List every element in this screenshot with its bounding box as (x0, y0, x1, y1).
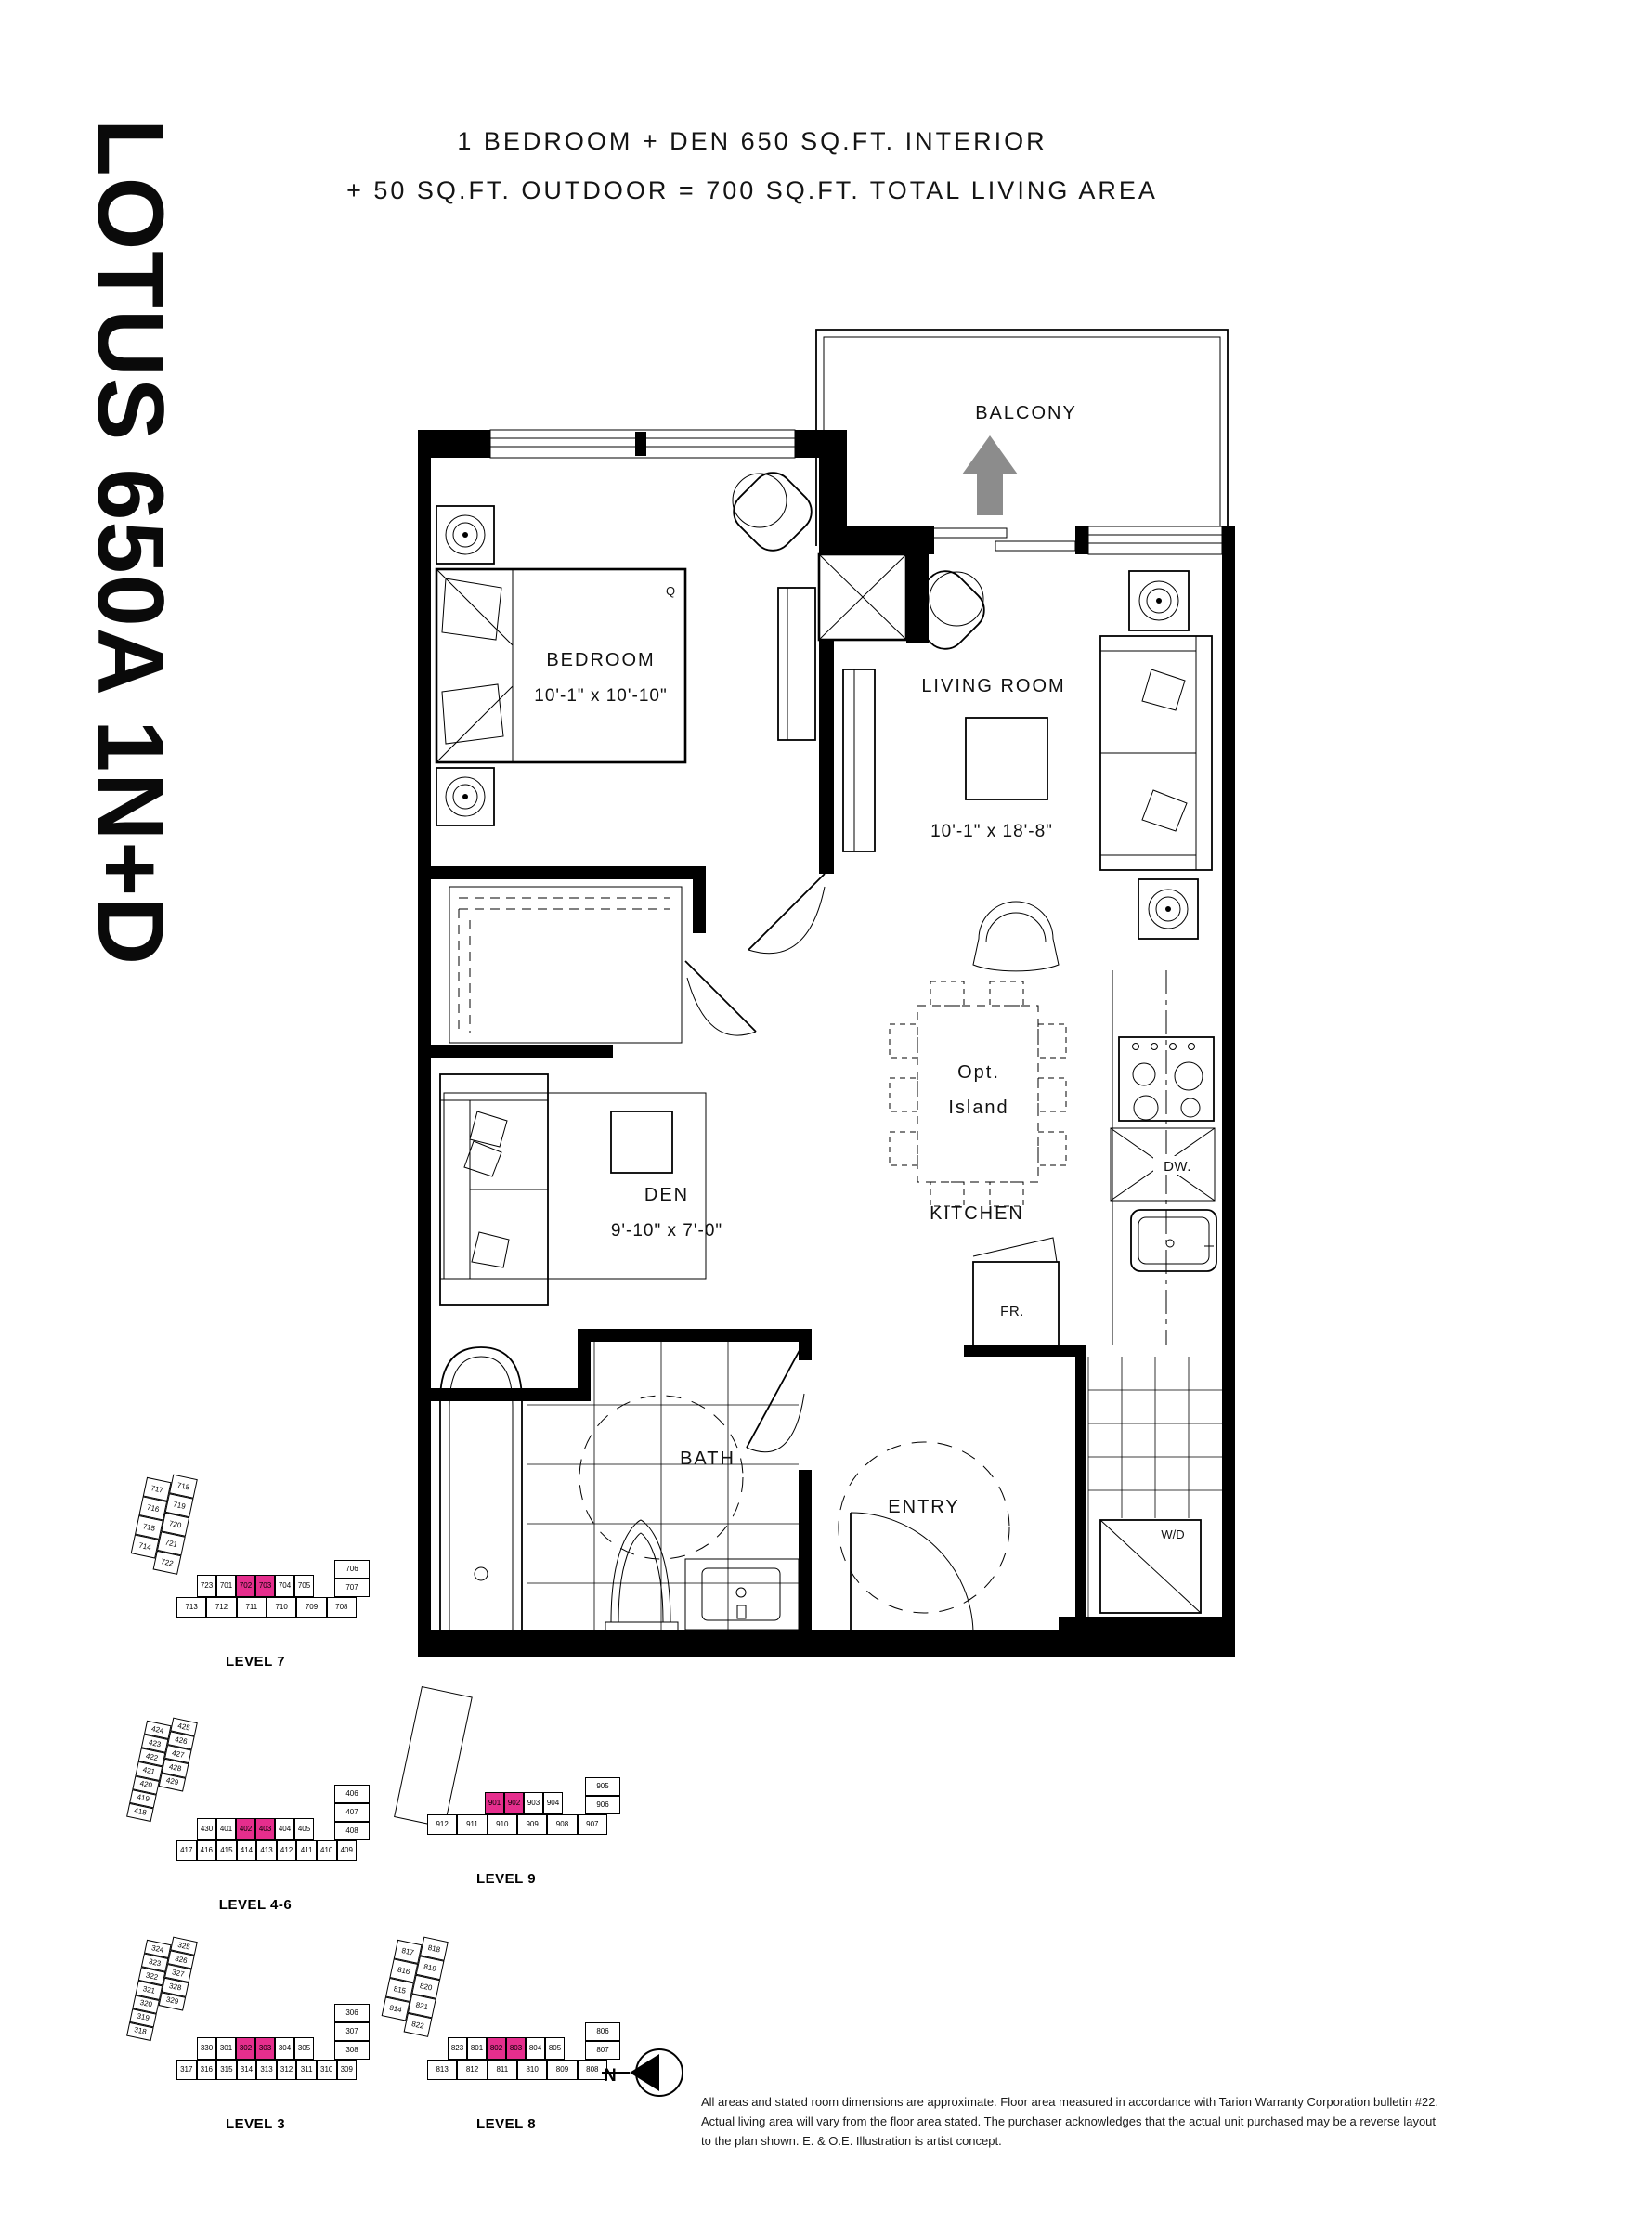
keyplan-unit: 902 (504, 1792, 524, 1814)
keyplan-unit: 908 (547, 1814, 577, 1835)
island-label-1: Opt. (957, 1062, 1000, 1083)
closet (449, 874, 825, 1043)
keyplan-unit: 403 (255, 1818, 275, 1840)
keyplan-row-top: 901902903904 (485, 1792, 563, 1814)
keyplan-unit: 314 (237, 2060, 257, 2080)
keyplan-unit: 315 (216, 2060, 237, 2080)
north-arrow-icon: N (602, 2047, 695, 2099)
keyplan-unit: 705 (294, 1575, 314, 1597)
keyplan-unit: 309 (337, 2060, 358, 2080)
keyplan-row-top: 430401402403404405 (197, 1818, 314, 1840)
keyplan-diagonal-wing: 717716715714718719720721722 (128, 1469, 198, 1575)
bath-door (747, 1342, 804, 1448)
keyplan-unit: 822 (404, 2013, 433, 2037)
keyplan-unit: 413 (256, 1840, 277, 1861)
keyplan-unit: 407 (334, 1803, 370, 1822)
keyplan-unit: 906 (585, 1796, 620, 1814)
keyplan-level-label: LEVEL 9 (390, 1871, 622, 1887)
keyplan-level-3: 3243233223213203193183253263273283293303… (139, 1928, 371, 2146)
keyplan-unit: 905 (585, 1777, 620, 1796)
keyplan-unit: 803 (506, 2037, 526, 2060)
keyplan-unit: 812 (457, 2060, 487, 2080)
kitchen-sink (1131, 1210, 1216, 1271)
keyplan-column-right: 406407408 (334, 1785, 370, 1840)
keyplan-unit: 811 (488, 2060, 517, 2080)
den-dims: 9'-10" x 7'-0" (611, 1221, 722, 1241)
den-sofa (440, 1074, 548, 1305)
bath: BATH (440, 1342, 804, 1637)
keyplan-row-top: 330301302303304305 (197, 2037, 314, 2060)
entry: W/D ENTRY (839, 1357, 1222, 1631)
keyplan-row-bottom: 713712711710709708 (176, 1597, 357, 1618)
bath-tiles (527, 1342, 799, 1630)
fridge: FR. (973, 1238, 1059, 1347)
keyplan-unit: 710 (267, 1597, 296, 1618)
armchair (725, 464, 820, 559)
balcony-arrow-icon (962, 435, 1018, 515)
ceiling-light-icon (436, 768, 494, 825)
keyplan-unit: 801 (467, 2037, 487, 2060)
keyplan-unit: 410 (317, 1840, 337, 1861)
vanity-sink (685, 1559, 799, 1630)
keyplan-unit: 316 (197, 2060, 217, 2080)
keyplan-unit: 802 (487, 2037, 506, 2060)
keyplan-unit: 311 (296, 2060, 317, 2080)
keyplan-unit: 823 (448, 2037, 467, 2060)
sofa (1100, 636, 1212, 870)
keyplan-level-label: LEVEL 3 (139, 2116, 371, 2132)
keyplan-unit: 813 (427, 2060, 457, 2080)
island-label-2: Island (948, 1098, 1008, 1118)
dishwasher-label: DW. (1164, 1159, 1191, 1175)
keyplan-unit: 330 (197, 2037, 216, 2060)
wardrobe (778, 588, 815, 740)
keyplan-unit: 304 (275, 2037, 294, 2060)
chair (973, 902, 1059, 971)
north-label: N (604, 2066, 617, 2086)
keyplan-level-9: 901902903904912911910909908907905906LEVE… (390, 1683, 622, 1901)
keyplan-unit: 707 (334, 1579, 370, 1597)
keyplan-unit: 417 (176, 1840, 197, 1861)
keyplan-unit: 904 (543, 1792, 563, 1814)
keyplan-unit: 706 (334, 1560, 370, 1579)
keyplan-unit: 306 (334, 2004, 370, 2022)
keyplan-unit: 408 (334, 1822, 370, 1840)
keyplan-unit: 701 (216, 1575, 236, 1597)
keyplan-unit: 709 (296, 1597, 326, 1618)
keyplan-unit: 303 (255, 2037, 275, 2060)
keyplan-unit: 308 (334, 2041, 370, 2060)
floorplan-page: LOTUS 650A 1N+D 1 BEDROOM + DEN 650 SQ.F… (0, 0, 1652, 2223)
floorplan-drawing: BALCONY (418, 320, 1235, 1676)
keyplan-unit: 312 (277, 2060, 297, 2080)
header-line1: 1 BEDROOM + DEN 650 SQ.FT. INTERIOR (288, 117, 1216, 166)
balcony-label: BALCONY (975, 403, 1077, 423)
keyplan-unit: 703 (255, 1575, 275, 1597)
keyplan-unit: 708 (327, 1597, 357, 1618)
shaft (819, 554, 906, 640)
keyplan-level-7: 7177167157147187197207217227237017027037… (139, 1465, 371, 1683)
keyplan-unit: 411 (296, 1840, 317, 1861)
bedroom-label: BEDROOM (546, 650, 655, 670)
keyplan-unit: 712 (206, 1597, 236, 1618)
keyplan-unit: 415 (216, 1840, 237, 1861)
keyplan-level-label: LEVEL 8 (390, 2116, 622, 2132)
den-table (611, 1111, 672, 1173)
bedroom-dims: 10'-1" x 10'-10" (534, 686, 667, 706)
keyplan-level-label: LEVEL 7 (139, 1654, 371, 1670)
keyplan-unit: 416 (197, 1840, 217, 1861)
keyplan-unit: 901 (485, 1792, 504, 1814)
keyplan-unit: 723 (197, 1575, 216, 1597)
kitchen: Opt. Island DW. (890, 970, 1216, 1347)
keyplan-unit: 912 (427, 1814, 457, 1835)
plan-title-vertical: LOTUS 650A 1N+D (79, 119, 183, 1038)
keyplan-diagonal-wing: 817816815814818819820821822 (379, 1931, 449, 2037)
keyplan-unit: 310 (317, 2060, 337, 2080)
tv-cabinet (843, 669, 875, 851)
island: Opt. Island (890, 981, 1066, 1206)
keyplan-unit: 409 (337, 1840, 358, 1861)
keyplan-unit: 313 (256, 2060, 277, 2080)
keyplan-unit: 302 (236, 2037, 255, 2060)
keyplan-unit: 907 (578, 1814, 607, 1835)
keyplan-unit: 805 (545, 2037, 565, 2060)
keyplan-column-right: 706707 (334, 1560, 370, 1597)
fridge-label: FR. (1000, 1304, 1024, 1319)
keyplan-unit: 911 (457, 1814, 487, 1835)
keyplan-unit: 702 (236, 1575, 255, 1597)
living-room: LIVING ROOM 10'-1" x 18'-8" (843, 563, 1212, 971)
keyplan-unit: 405 (294, 1818, 314, 1840)
keyplan-diagonal-wing (394, 1686, 473, 1827)
ceiling-light-icon (1129, 571, 1189, 630)
ceiling-light-icon (436, 506, 494, 564)
header-line2: + 50 SQ.FT. OUTDOOR = 700 SQ.FT. TOTAL L… (288, 166, 1216, 215)
keyplan-diagonal-wing: 324323322321320319318325326327328329 (126, 1931, 198, 2047)
keyplan-row-bottom: 317316315314313312311310309 (176, 2060, 357, 2080)
disclaimer-text: All areas and stated room dimensions are… (701, 2093, 1444, 2151)
living-room-dims: 10'-1" x 18'-8" (930, 822, 1053, 841)
keyplan-level-4-6: 4244234224214204194184254264274284294304… (139, 1709, 371, 1927)
keyplan-unit: 909 (517, 1814, 547, 1835)
keyplan-unit: 406 (334, 1785, 370, 1803)
keyplan-unit: 305 (294, 2037, 314, 2060)
keyplan-unit: 412 (277, 1840, 297, 1861)
keyplan-unit: 401 (216, 1818, 236, 1840)
balcony: BALCONY (816, 330, 1228, 546)
den-label: DEN (644, 1185, 689, 1205)
keyplan-unit: 806 (585, 2022, 620, 2041)
keyplan-column-right: 306307308 (334, 2004, 370, 2060)
keyplan-unit: 711 (237, 1597, 267, 1618)
keyplan-unit: 910 (488, 1814, 517, 1835)
keyplan-level-8: 8178168158148188198208218228238018028038… (390, 1928, 622, 2146)
plan-header: 1 BEDROOM + DEN 650 SQ.FT. INTERIOR + 50… (288, 117, 1216, 214)
washer-dryer: W/D (1100, 1520, 1201, 1613)
keyplan-unit: 307 (334, 2022, 370, 2041)
bed-size-label: Q (666, 584, 675, 598)
keyplan-unit: 903 (524, 1792, 543, 1814)
washer-dryer-label: W/D (1161, 1527, 1184, 1541)
entry-label: ENTRY (888, 1497, 959, 1517)
keyplan-row-top: 823801802803804805 (448, 2037, 565, 2060)
toilet (605, 1520, 678, 1637)
keyplan-unit: 301 (216, 2037, 236, 2060)
keyplan-unit: 713 (176, 1597, 206, 1618)
entry-turning-circle (839, 1442, 1009, 1613)
ceiling-light-icon (1138, 879, 1198, 939)
bedroom: Q BEDROOM 10'-1" x 10'-10" (436, 464, 820, 825)
keyplan-level-label: LEVEL 4-6 (139, 1897, 371, 1913)
coffee-table (966, 718, 1047, 799)
living-room-label: LIVING ROOM (921, 676, 1065, 696)
keyplan-unit: 704 (275, 1575, 294, 1597)
keyplan-unit: 414 (237, 1840, 257, 1861)
dishwasher: DW. (1111, 1128, 1215, 1201)
entry-tiles (1088, 1357, 1222, 1624)
keyplan-unit: 804 (526, 2037, 545, 2060)
keyplan-unit: 722 (153, 1551, 182, 1575)
keyplan-unit: 404 (275, 1818, 294, 1840)
keyplan-unit: 430 (197, 1818, 216, 1840)
kitchen-label: KITCHEN (930, 1203, 1024, 1224)
keyplan-unit: 317 (176, 2060, 197, 2080)
keyplan-unit: 810 (517, 2060, 547, 2080)
keyplan-diagonal-wing: 424423422421420419418425426427428429 (126, 1712, 198, 1827)
keyplan-column-right: 905906 (585, 1777, 620, 1814)
keyplan-row-top: 723701702703704705 (197, 1575, 314, 1597)
keyplan-row-bottom: 417416415414413412411410409 (176, 1840, 357, 1861)
keyplan-row-bottom: 912911910909908907 (427, 1814, 607, 1835)
keyplan-unit: 402 (236, 1818, 255, 1840)
bath-label: BATH (680, 1449, 735, 1469)
den: DEN 9'-10" x 7'-0" (440, 1074, 722, 1305)
keyplan-row-bottom: 813812811810809808 (427, 2060, 607, 2080)
keyplan-unit: 809 (547, 2060, 577, 2080)
